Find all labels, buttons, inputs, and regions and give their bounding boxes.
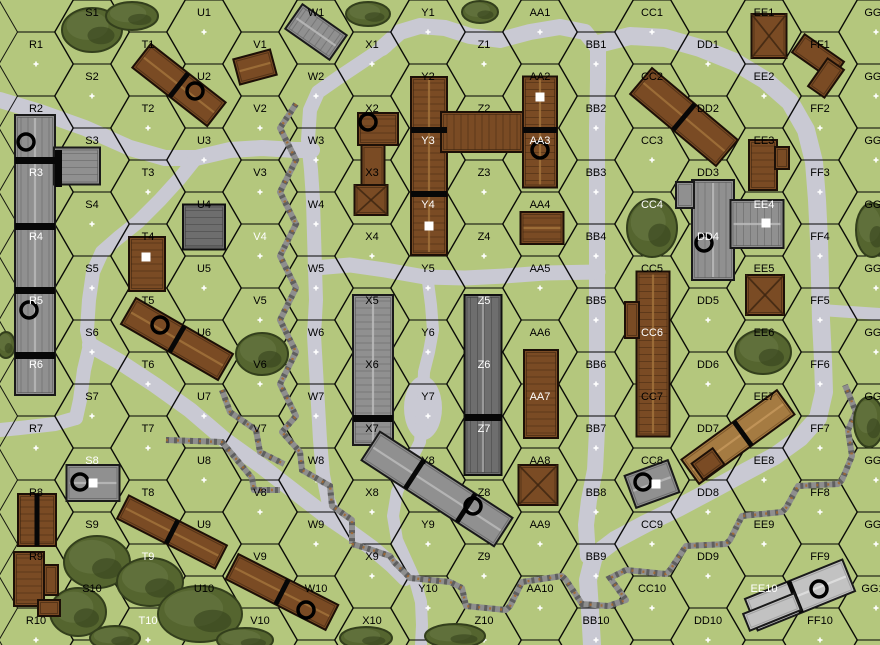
hex-label-EE5: EE5 (754, 263, 775, 275)
hex-dot (427, 414, 429, 419)
building-r9-annex (38, 600, 60, 616)
hex-dot (539, 542, 541, 547)
hex-label-U2: U2 (197, 71, 211, 83)
stairwell-square-icon (89, 479, 98, 488)
hex-dot (595, 574, 597, 579)
hex-dot (371, 510, 373, 515)
hex-dot (595, 62, 597, 67)
hex-label-Y10: Y10 (418, 583, 438, 595)
hex-label-DD7: DD7 (697, 423, 719, 435)
game-map-window: R1R2R3R4R5R6R7R8R9R10S1S2S3S4S5S6S7S8S9S… (0, 0, 880, 645)
stairwell-square-icon (425, 222, 434, 231)
hex-label-CC7: CC7 (641, 391, 663, 403)
hex-dot (651, 158, 653, 163)
hex-label-T10: T10 (139, 615, 158, 627)
building-u4-ruin (183, 205, 225, 250)
hex-dot (595, 638, 597, 643)
hex-label-GG9: GG9 (864, 519, 880, 531)
hex-label-GG4: GG4 (864, 199, 880, 211)
building-z-crossbar (441, 112, 523, 152)
hex-label-CC4: CC4 (641, 199, 663, 211)
hex-label-GG2: GG2 (864, 71, 880, 83)
hex-label-FF9: FF9 (810, 551, 830, 563)
hex-label-FF8: FF8 (810, 487, 830, 499)
hex-label-DD5: DD5 (697, 295, 719, 307)
hex-label-BB10: BB10 (583, 615, 610, 627)
building-ee3-annex (775, 147, 789, 169)
hex-label-DD10: DD10 (694, 615, 722, 627)
hex-dot (707, 510, 709, 515)
hex-label-CC9: CC9 (641, 519, 663, 531)
hex-label-Z2: Z2 (478, 103, 491, 115)
hex-dot (651, 542, 653, 547)
hex-label-FF2: FF2 (810, 103, 830, 115)
hex-dot (651, 606, 653, 611)
hex-label-CC8: CC8 (641, 455, 663, 467)
hex-dot (875, 542, 877, 547)
hex-dot (315, 542, 317, 547)
hex-label-W1: W1 (308, 7, 325, 19)
building-aa4-house (521, 212, 564, 244)
hex-dot (875, 30, 877, 35)
hex-label-Z5: Z5 (478, 295, 491, 307)
hex-label-GG7: GG7 (864, 391, 880, 403)
hex-label-Z10: Z10 (475, 615, 494, 627)
hex-label-DD4: DD4 (697, 231, 719, 243)
hex-dot (315, 222, 317, 227)
hex-label-Z7: Z7 (478, 423, 491, 435)
hex-dot (259, 382, 261, 387)
hexside-band (15, 223, 55, 230)
hex-dot (315, 94, 317, 99)
hex-label-U8: U8 (197, 455, 211, 467)
hex-dot (203, 30, 205, 35)
hex-label-DD6: DD6 (697, 359, 719, 371)
hex-dot (91, 286, 93, 291)
hex-label-GG5: GG5 (864, 263, 880, 275)
hex-label-W4: W4 (308, 199, 325, 211)
stairwell-square-icon (762, 219, 771, 228)
hex-label-Z9: Z9 (478, 551, 491, 563)
hex-dot (819, 446, 821, 451)
hex-label-U9: U9 (197, 519, 211, 531)
hex-label-X9: X9 (365, 551, 378, 563)
hex-label-S1: S1 (85, 7, 98, 19)
hex-label-Z6: Z6 (478, 359, 491, 371)
hex-label-BB8: BB8 (586, 487, 607, 499)
hex-label-S2: S2 (85, 71, 98, 83)
hex-label-X4: X4 (365, 231, 378, 243)
hex-dot (595, 318, 597, 323)
hex-dot (875, 94, 877, 99)
hex-label-BB7: BB7 (586, 423, 607, 435)
hex-dot (595, 446, 597, 451)
stairwell-square-icon (142, 253, 151, 262)
hex-label-AA3: AA3 (530, 135, 551, 147)
hex-label-S6: S6 (85, 327, 98, 339)
hex-dot (35, 446, 37, 451)
hex-dot (147, 638, 149, 643)
hex-label-Y8: Y8 (421, 455, 434, 467)
hex-label-Y2: Y2 (421, 71, 434, 83)
hex-label-GG1: GG1 (864, 7, 880, 19)
hex-dot (315, 286, 317, 291)
hex-label-U10: U10 (194, 583, 214, 595)
hex-label-R3: R3 (29, 167, 43, 179)
hex-label-CC5: CC5 (641, 263, 663, 275)
hex-label-X3: X3 (365, 167, 378, 179)
hex-label-T4: T4 (142, 231, 155, 243)
hex-label-U7: U7 (197, 391, 211, 403)
hex-label-W5: W5 (308, 263, 325, 275)
hex-dot (203, 478, 205, 483)
hex-dot (35, 638, 37, 643)
hex-dot (203, 414, 205, 419)
hex-dot (539, 286, 541, 291)
hex-dot (875, 606, 877, 611)
hex-label-W8: W8 (308, 455, 325, 467)
hex-label-Y1: Y1 (421, 7, 434, 19)
hex-label-BB2: BB2 (586, 103, 607, 115)
hex-label-DD9: DD9 (697, 551, 719, 563)
building-ee1-house (752, 14, 787, 58)
hex-label-CC6: CC6 (641, 327, 663, 339)
hex-label-Y9: Y9 (421, 519, 434, 531)
hex-label-BB3: BB3 (586, 167, 607, 179)
hex-dot (371, 254, 373, 259)
hexside-band (465, 414, 502, 421)
hex-label-V1: V1 (253, 39, 266, 51)
hex-label-AA9: AA9 (530, 519, 551, 531)
hex-dot (819, 254, 821, 259)
hex-label-R5: R5 (29, 295, 43, 307)
hex-dot (259, 190, 261, 195)
hex-dot (259, 318, 261, 323)
building-z5-bar (465, 295, 502, 475)
hex-dot (483, 254, 485, 259)
hex-label-AA2: AA2 (530, 71, 551, 83)
hex-dot (315, 350, 317, 355)
hex-label-V6: V6 (253, 359, 266, 371)
hex-dot (427, 606, 429, 611)
hex-label-T8: T8 (142, 487, 155, 499)
hexside-band (15, 287, 55, 294)
hex-label-X6: X6 (365, 359, 378, 371)
hex-dot (819, 318, 821, 323)
hex-dot (595, 254, 597, 259)
hex-label-Z4: Z4 (478, 231, 491, 243)
hex-label-DD3: DD3 (697, 167, 719, 179)
hex-label-EE2: EE2 (754, 71, 775, 83)
hex-dot (427, 542, 429, 547)
hex-dot (35, 62, 37, 67)
hex-label-W7: W7 (308, 391, 325, 403)
hex-label-V4: V4 (253, 231, 266, 243)
gg4-woods (856, 203, 880, 257)
hex-label-W6: W6 (308, 327, 325, 339)
hex-map-canvas[interactable]: R1R2R3R4R5R6R7R8R9R10S1S2S3S4S5S6S7S8S9S… (0, 0, 880, 645)
hex-label-R4: R4 (29, 231, 43, 243)
hex-label-GG3: GG3 (864, 135, 880, 147)
hex-label-FF6: FF6 (810, 359, 830, 371)
hex-label-R1: R1 (29, 39, 43, 51)
x10-woods (340, 627, 392, 645)
hex-label-Y7: Y7 (421, 391, 434, 403)
hexside-band (523, 127, 557, 133)
hex-label-S9: S9 (85, 519, 98, 531)
hex-label-R7: R7 (29, 423, 43, 435)
hex-label-CC1: CC1 (641, 7, 663, 19)
hex-label-V3: V3 (253, 167, 266, 179)
hex-label-U5: U5 (197, 263, 211, 275)
hex-label-U3: U3 (197, 135, 211, 147)
hex-dot (595, 126, 597, 131)
building-ee5-house (746, 275, 784, 315)
hexside-band (15, 352, 55, 359)
hex-label-DD1: DD1 (697, 39, 719, 51)
hex-label-CC10: CC10 (638, 583, 666, 595)
building-ee3-house (749, 140, 777, 190)
hex-label-EE8: EE8 (754, 455, 775, 467)
hex-label-BB4: BB4 (586, 231, 607, 243)
hex-dot (427, 30, 429, 35)
hex-label-Z8: Z8 (478, 487, 491, 499)
hex-dot (875, 478, 877, 483)
hex-label-AA8: AA8 (530, 455, 551, 467)
hex-label-FF1: FF1 (810, 39, 830, 51)
hex-label-EE1: EE1 (754, 7, 775, 19)
hex-dot (595, 190, 597, 195)
hex-label-FF10: FF10 (807, 615, 833, 627)
hex-label-U4: U4 (197, 199, 211, 211)
hex-dot (483, 574, 485, 579)
hex-dot (91, 414, 93, 419)
hex-dot (875, 158, 877, 163)
hex-dot (819, 638, 821, 643)
hex-label-V9: V9 (253, 551, 266, 563)
hex-label-FF7: FF7 (810, 423, 830, 435)
hex-dot (483, 190, 485, 195)
hex-label-W3: W3 (308, 135, 325, 147)
hex-dot (91, 222, 93, 227)
hex-label-R6: R6 (29, 359, 43, 371)
hex-label-AA5: AA5 (530, 263, 551, 275)
hex-label-AA6: AA6 (530, 327, 551, 339)
hex-label-Y6: Y6 (421, 327, 434, 339)
hex-label-V8: V8 (253, 487, 266, 499)
hexside-band (411, 127, 447, 133)
hex-label-R10: R10 (26, 615, 46, 627)
z10-woods (425, 624, 485, 645)
hex-dot (819, 382, 821, 387)
hex-label-EE7: EE7 (754, 391, 775, 403)
hex-dot (763, 94, 765, 99)
hex-label-Y3: Y3 (421, 135, 434, 147)
hex-label-X5: X5 (365, 295, 378, 307)
hex-dot (763, 542, 765, 547)
hex-label-DD2: DD2 (697, 103, 719, 115)
hex-label-W9: W9 (308, 519, 325, 531)
hex-label-W2: W2 (308, 71, 325, 83)
hex-label-V2: V2 (253, 103, 266, 115)
hex-dot (875, 286, 877, 291)
hex-dot (259, 254, 261, 259)
hexside-band (411, 191, 447, 197)
hex-label-S7: S7 (85, 391, 98, 403)
building-dd4-annex (676, 182, 694, 208)
hex-dot (595, 510, 597, 515)
hex-label-R2: R2 (29, 103, 43, 115)
hex-label-T9: T9 (142, 551, 155, 563)
hex-label-V10: V10 (250, 615, 270, 627)
hex-label-FF3: FF3 (810, 167, 830, 179)
hex-dot (819, 510, 821, 515)
hexside-band (15, 157, 55, 164)
hex-dot (819, 190, 821, 195)
hex-dot (371, 574, 373, 579)
building-x3-house (355, 185, 388, 215)
building-x2b-house (362, 145, 385, 187)
building-t4-house (129, 237, 165, 291)
hex-dot (539, 606, 541, 611)
hex-label-BB6: BB6 (586, 359, 607, 371)
hex-label-Y5: Y5 (421, 263, 434, 275)
gg5-branch (821, 310, 880, 314)
hex-label-T6: T6 (142, 359, 155, 371)
hex-label-T2: T2 (142, 103, 155, 115)
hex-dot (147, 382, 149, 387)
hex-label-S10: S10 (82, 583, 102, 595)
hex-dot (147, 190, 149, 195)
hex-label-X8: X8 (365, 487, 378, 499)
hex-label-U1: U1 (197, 7, 211, 19)
hex-dot (651, 30, 653, 35)
hex-dot (427, 286, 429, 291)
hex-dot (819, 126, 821, 131)
hex-label-W10: W10 (305, 583, 328, 595)
hex-dot (259, 510, 261, 515)
hex-label-S3: S3 (85, 135, 98, 147)
hex-dot (707, 574, 709, 579)
building-cc6-annex (625, 302, 639, 338)
gg7-woods (854, 397, 880, 447)
hex-dot (91, 94, 93, 99)
hex-label-FF4: FF4 (810, 231, 830, 243)
hex-label-EE6: EE6 (754, 327, 775, 339)
hex-label-U6: U6 (197, 327, 211, 339)
hex-label-CC3: CC3 (641, 135, 663, 147)
building-cc5-bar (637, 272, 670, 437)
z1-woods (462, 1, 498, 23)
hex-dot (147, 126, 149, 131)
hex-label-S5: S5 (85, 263, 98, 275)
hex-label-FF5: FF5 (810, 295, 830, 307)
hex-dot (483, 62, 485, 67)
hex-dot (371, 62, 373, 67)
hex-label-V5: V5 (253, 295, 266, 307)
hex-dot (707, 382, 709, 387)
hex-label-GG8: GG8 (864, 455, 880, 467)
hex-label-GG10: GG10 (861, 583, 880, 595)
hex-dot (595, 382, 597, 387)
hex-label-DD8: DD8 (697, 487, 719, 499)
hex-label-S4: S4 (85, 199, 98, 211)
building-aa8-house (519, 465, 558, 505)
hex-dot (707, 638, 709, 643)
hex-label-BB1: BB1 (586, 39, 607, 51)
hex-label-X10: X10 (362, 615, 382, 627)
stairwell-square-icon (536, 93, 545, 102)
hex-label-T5: T5 (142, 295, 155, 307)
building-dd4-block (692, 180, 734, 280)
hex-label-AA7: AA7 (530, 391, 551, 403)
hex-label-Z1: Z1 (478, 39, 491, 51)
hex-label-EE9: EE9 (754, 519, 775, 531)
hex-label-BB9: BB9 (586, 551, 607, 563)
hex-label-X7: X7 (365, 423, 378, 435)
hexside-band (55, 150, 62, 187)
hex-dot (203, 158, 205, 163)
hex-dot (315, 414, 317, 419)
hex-dot (539, 30, 541, 35)
hex-label-S8: S8 (85, 455, 98, 467)
hex-dot (315, 158, 317, 163)
hex-dot (875, 350, 877, 355)
hex-dot (259, 126, 261, 131)
hex-label-X2: X2 (365, 103, 378, 115)
hex-label-AA10: AA10 (527, 583, 554, 595)
hex-label-Y4: Y4 (421, 199, 434, 211)
stairwell-square-icon (652, 480, 661, 489)
hex-label-AA1: AA1 (530, 7, 551, 19)
hex-label-AA4: AA4 (530, 199, 551, 211)
hex-label-EE10: EE10 (751, 583, 778, 595)
hex-dot (91, 350, 93, 355)
building-r9-arm (44, 565, 58, 595)
hex-label-T1: T1 (142, 39, 155, 51)
hex-label-R9: R9 (29, 551, 43, 563)
hex-label-GG6: GG6 (864, 327, 880, 339)
hex-label-Z3: Z3 (478, 167, 491, 179)
hex-label-V7: V7 (253, 423, 266, 435)
hex-dot (763, 478, 765, 483)
hex-label-X1: X1 (365, 39, 378, 51)
hex-dot (147, 446, 149, 451)
hex-dot (203, 286, 205, 291)
hexside-band (353, 415, 393, 422)
hex-label-R8: R8 (29, 487, 43, 499)
hex-dot (707, 62, 709, 67)
r7-woods (0, 332, 15, 358)
hex-label-T7: T7 (142, 423, 155, 435)
hex-dot (707, 318, 709, 323)
hex-label-EE4: EE4 (754, 199, 775, 211)
hex-label-BB5: BB5 (586, 295, 607, 307)
hex-label-T3: T3 (142, 167, 155, 179)
x1-woods (346, 2, 390, 26)
hex-label-CC2: CC2 (641, 71, 663, 83)
hex-dot (427, 350, 429, 355)
hex-label-EE3: EE3 (754, 135, 775, 147)
building-r8-house (18, 494, 56, 546)
